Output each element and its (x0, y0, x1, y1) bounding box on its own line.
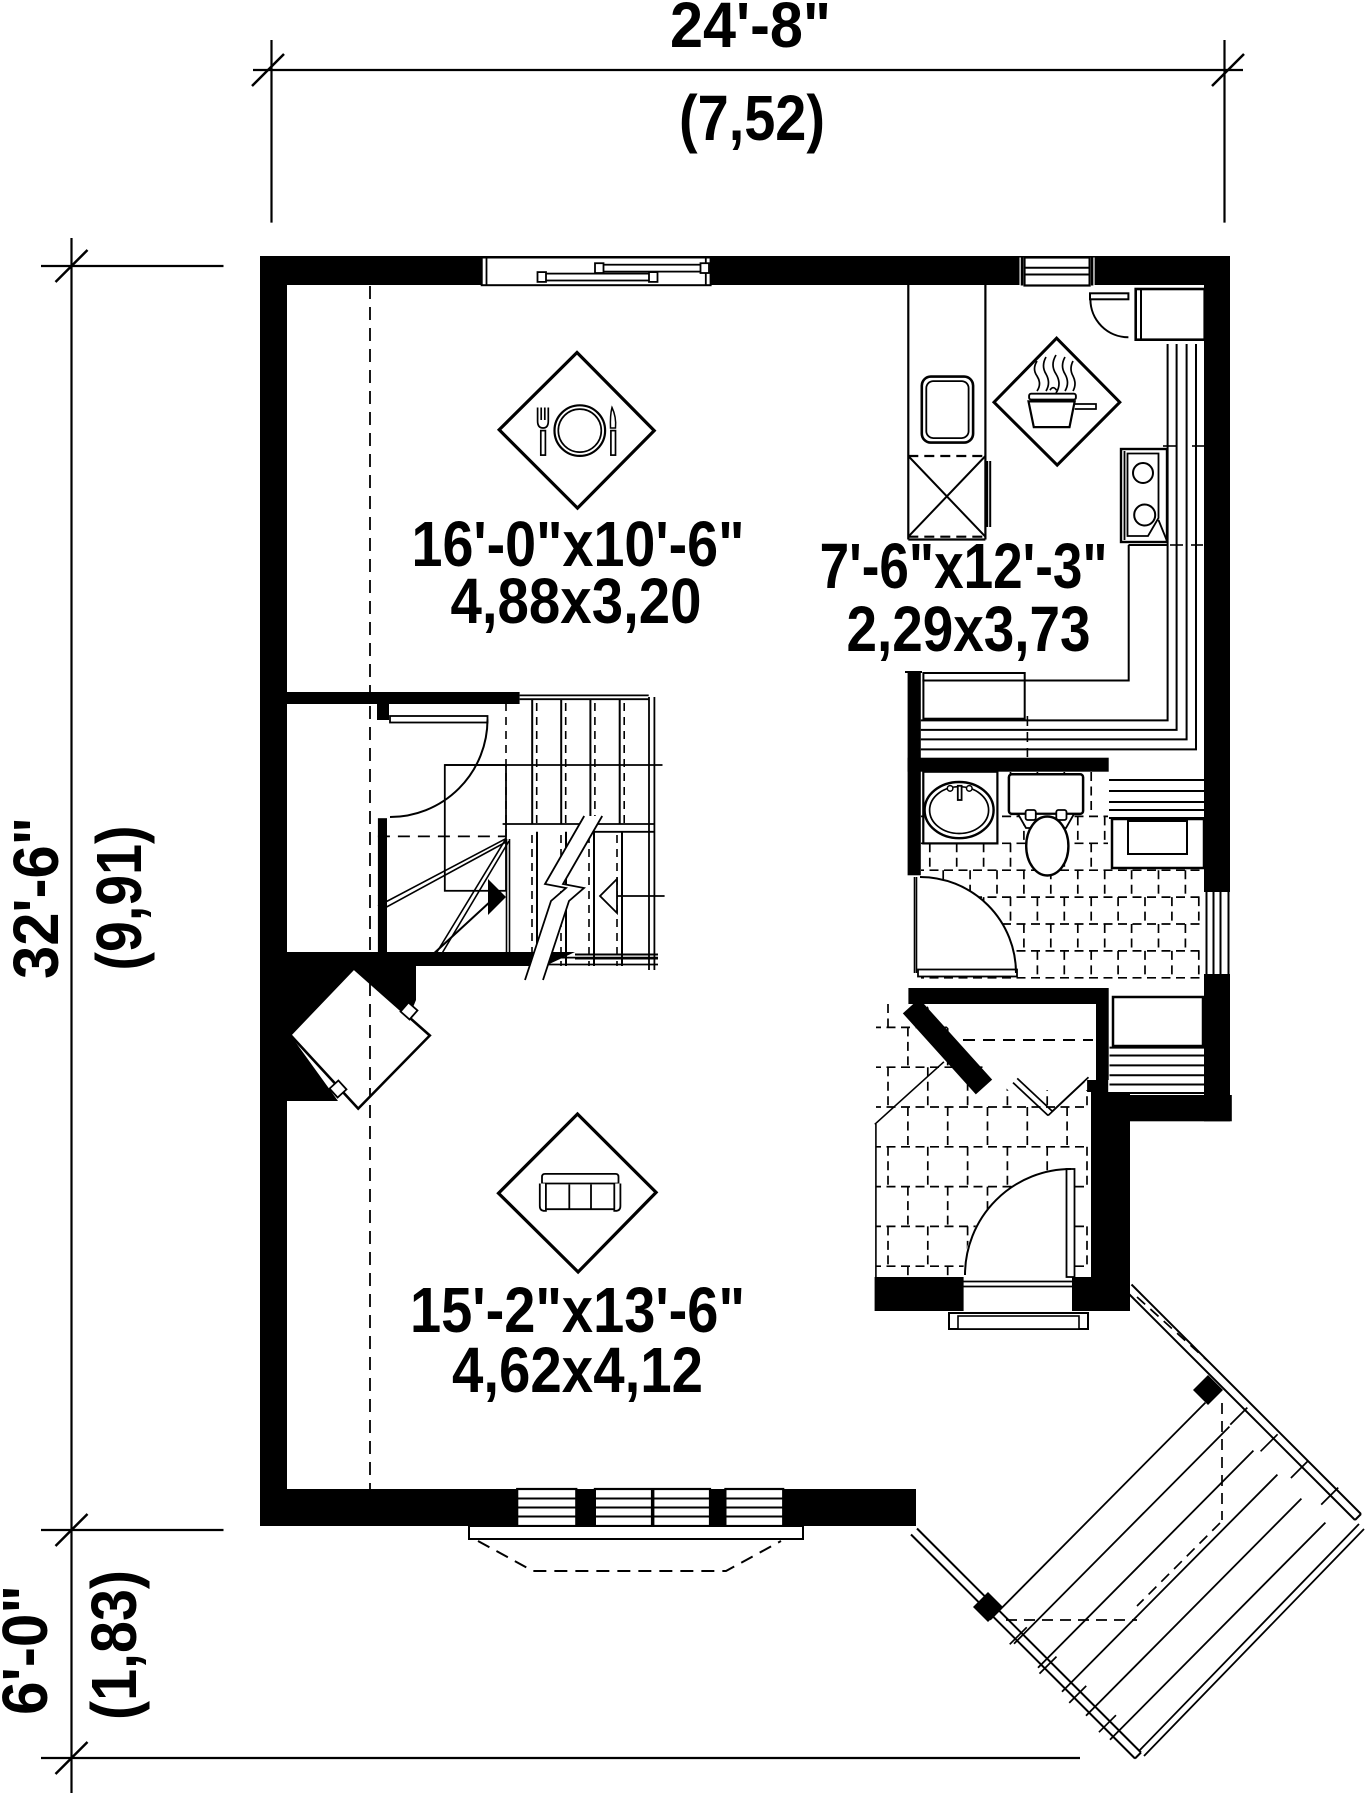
svg-text:(7,52): (7,52) (679, 82, 825, 154)
svg-text:4,88x3,20: 4,88x3,20 (451, 565, 702, 637)
svg-text:7'-6"x12'-3": 7'-6"x12'-3" (820, 530, 1108, 602)
svg-text:4,62x4,12: 4,62x4,12 (452, 1334, 703, 1406)
svg-text:32'-6": 32'-6" (0, 817, 72, 979)
svg-text:(1,83): (1,83) (78, 1570, 150, 1720)
svg-text:6'-0": 6'-0" (0, 1585, 61, 1715)
svg-text:24'-8": 24'-8" (670, 0, 831, 61)
svg-text:2,29x3,73: 2,29x3,73 (847, 593, 1091, 665)
svg-text:(9,91): (9,91) (83, 826, 155, 971)
